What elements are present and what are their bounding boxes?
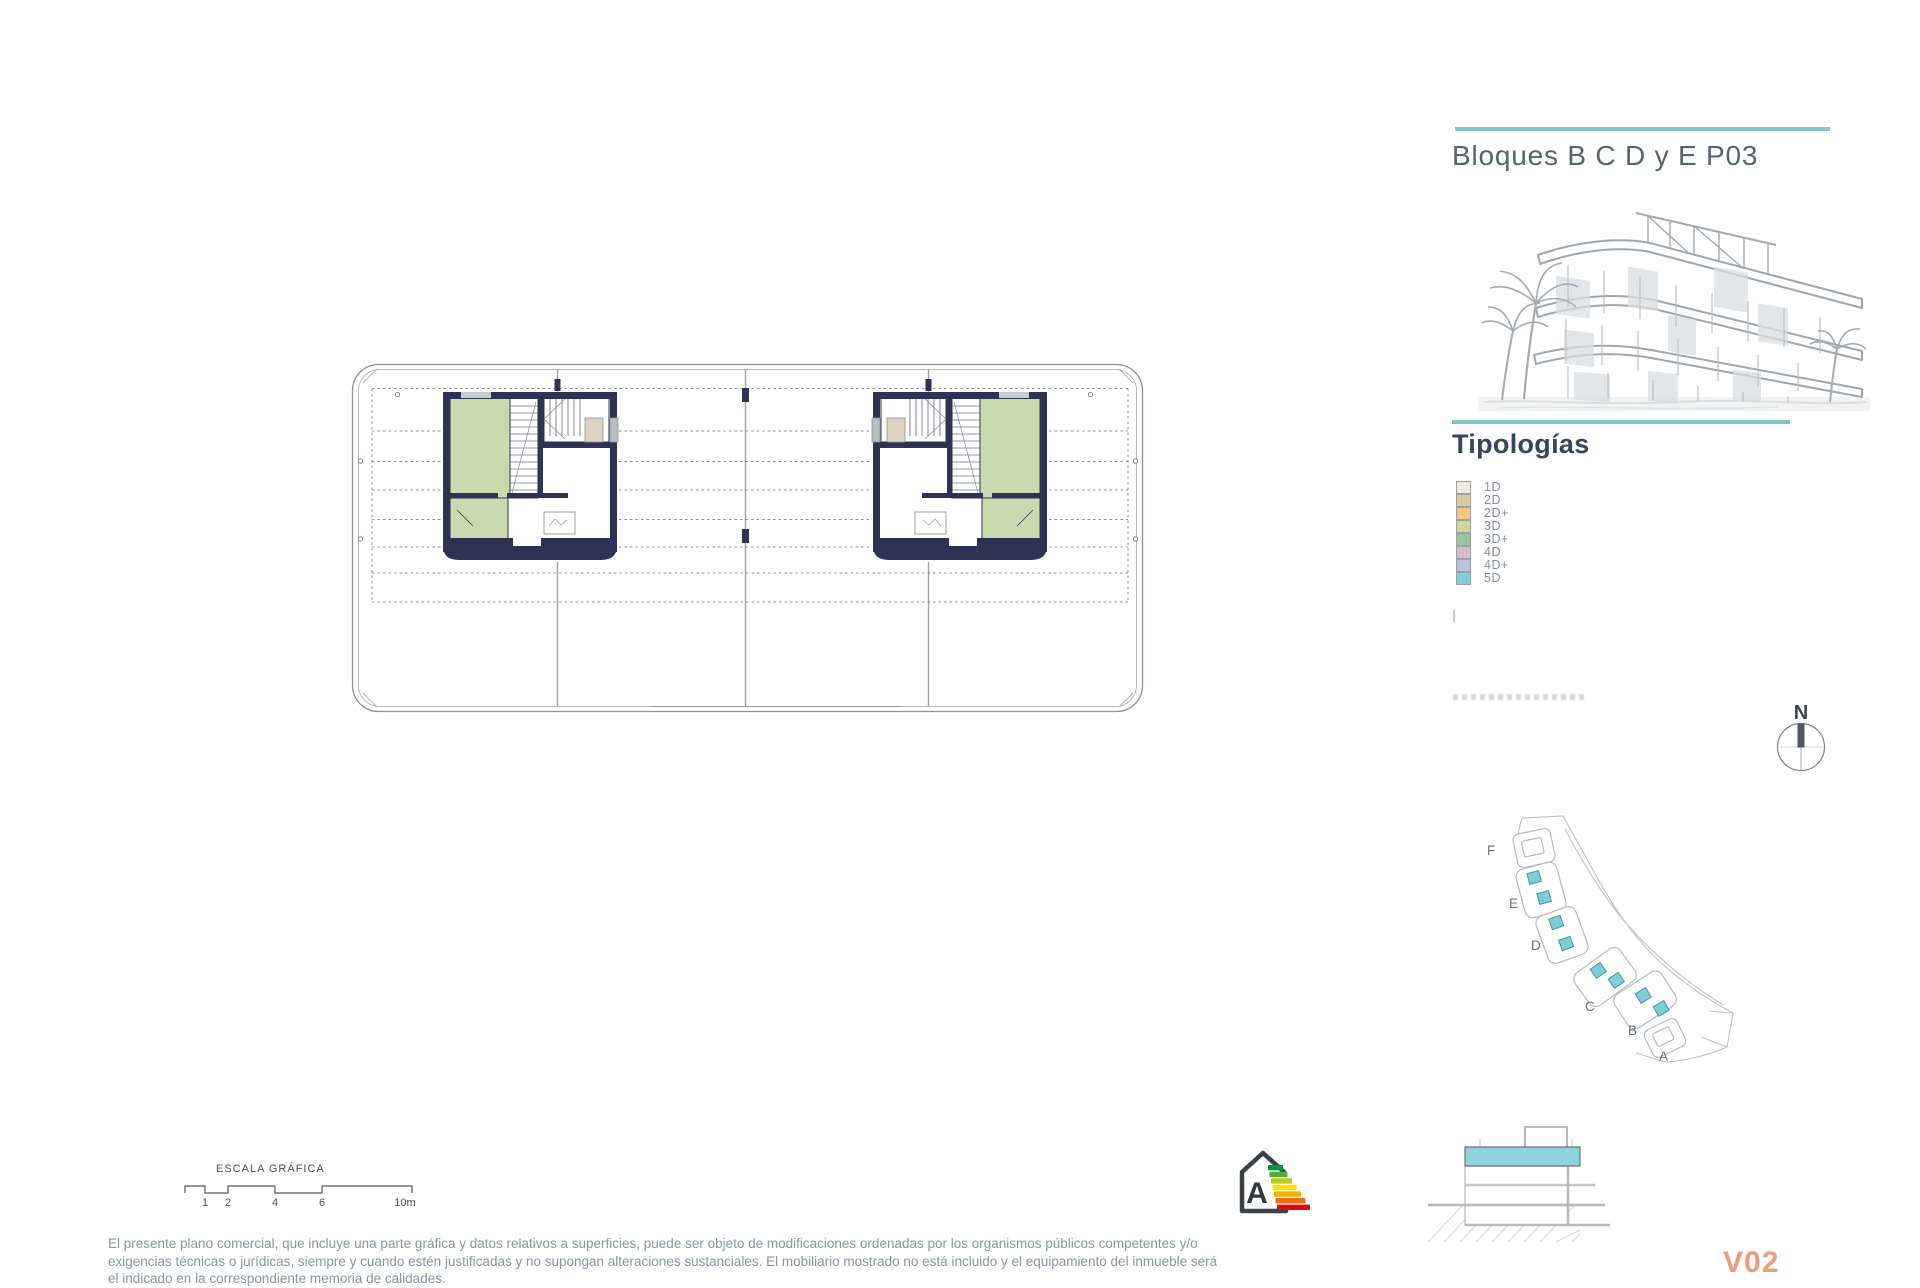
block-label-e: E <box>1509 896 1518 911</box>
energy-bar <box>1276 1198 1306 1203</box>
disclaimer-line: exigencias técnicas o jurídicas, siempre… <box>108 1253 1388 1271</box>
block-label-c: C <box>1585 999 1595 1014</box>
typologies-heading: Tipologías <box>1452 429 1590 460</box>
scale-bar-title: ESCALA GRÁFICA <box>216 1162 325 1175</box>
faint-tick-artifact <box>1453 610 1455 622</box>
floor-plan <box>340 352 1160 722</box>
block-label-b: B <box>1628 1023 1637 1038</box>
scale-tick: 6 <box>319 1197 325 1209</box>
energy-bar <box>1274 1191 1301 1196</box>
energy-bar <box>1271 1178 1292 1183</box>
disclaimer-line: el indicado en la correspondiente memori… <box>108 1270 1388 1288</box>
north-compass-icon: N <box>1766 700 1836 780</box>
legend-swatch-3d <box>1456 520 1471 533</box>
legend-label: 5D <box>1484 572 1501 585</box>
legend-swatch-4d <box>1456 546 1471 559</box>
apartment-unit-left <box>443 392 618 562</box>
scale-bar-ticks: 1 2 4 6 10m <box>202 1197 416 1209</box>
graphic-scale-bar: ESCALA GRÁFICA 1 2 4 6 10m <box>178 1158 428 1210</box>
legend-swatch-5d <box>1456 572 1471 585</box>
disclaimer-line: El presente plano comercial, que incluye… <box>108 1235 1388 1253</box>
section-building-body <box>1465 1166 1568 1225</box>
block-label-d: D <box>1531 938 1541 953</box>
section-floor-locator <box>1420 1092 1620 1247</box>
page-title: Bloques B C D y E P03 <box>1452 140 1758 172</box>
building-sketch-illustration <box>1478 203 1870 419</box>
typologies-accent-rule <box>1452 420 1790 424</box>
apartment-unit-right <box>872 392 1047 562</box>
energy-bar <box>1270 1172 1288 1177</box>
section-highlighted-floor-p03 <box>1465 1147 1580 1166</box>
typologies-legend: 1D 2D 2D+ 3D 3D+ 4D 4D+ 5D <box>1456 481 1509 585</box>
section-roof-box <box>1525 1127 1567 1148</box>
legend-swatch-3dplus <box>1456 533 1471 546</box>
scale-tick: 1 <box>202 1197 208 1209</box>
scale-tick: 10m <box>394 1197 415 1209</box>
north-label: N <box>1794 702 1808 724</box>
legend-swatch-4dplus <box>1456 559 1471 572</box>
site-key-plan: F E D C B A <box>1465 815 1755 1080</box>
plan-sheet: { "header": { "title": "Bloques B C D y … <box>0 0 1920 1280</box>
scale-tick: 2 <box>225 1197 231 1209</box>
energy-bar <box>1273 1185 1297 1190</box>
legend-swatch-2d <box>1456 494 1471 507</box>
sheet-version: V02 <box>1723 1246 1779 1280</box>
scale-tick: 4 <box>272 1197 278 1209</box>
block-label-a: A <box>1659 1049 1668 1064</box>
energy-rating-icon: A <box>1230 1145 1320 1220</box>
legend-row: 5D <box>1456 572 1509 585</box>
energy-bar <box>1277 1205 1310 1210</box>
scale-bar-line <box>185 1186 412 1193</box>
energy-bar <box>1268 1165 1283 1170</box>
title-accent-rule <box>1455 127 1830 131</box>
block-label-f: F <box>1487 843 1495 858</box>
faint-text-artifact <box>1453 694 1585 700</box>
legend-swatch-2dplus <box>1456 507 1471 520</box>
energy-grade-letter: A <box>1246 1177 1268 1210</box>
legend-swatch-1d <box>1456 481 1471 494</box>
energy-bars <box>1268 1165 1310 1210</box>
